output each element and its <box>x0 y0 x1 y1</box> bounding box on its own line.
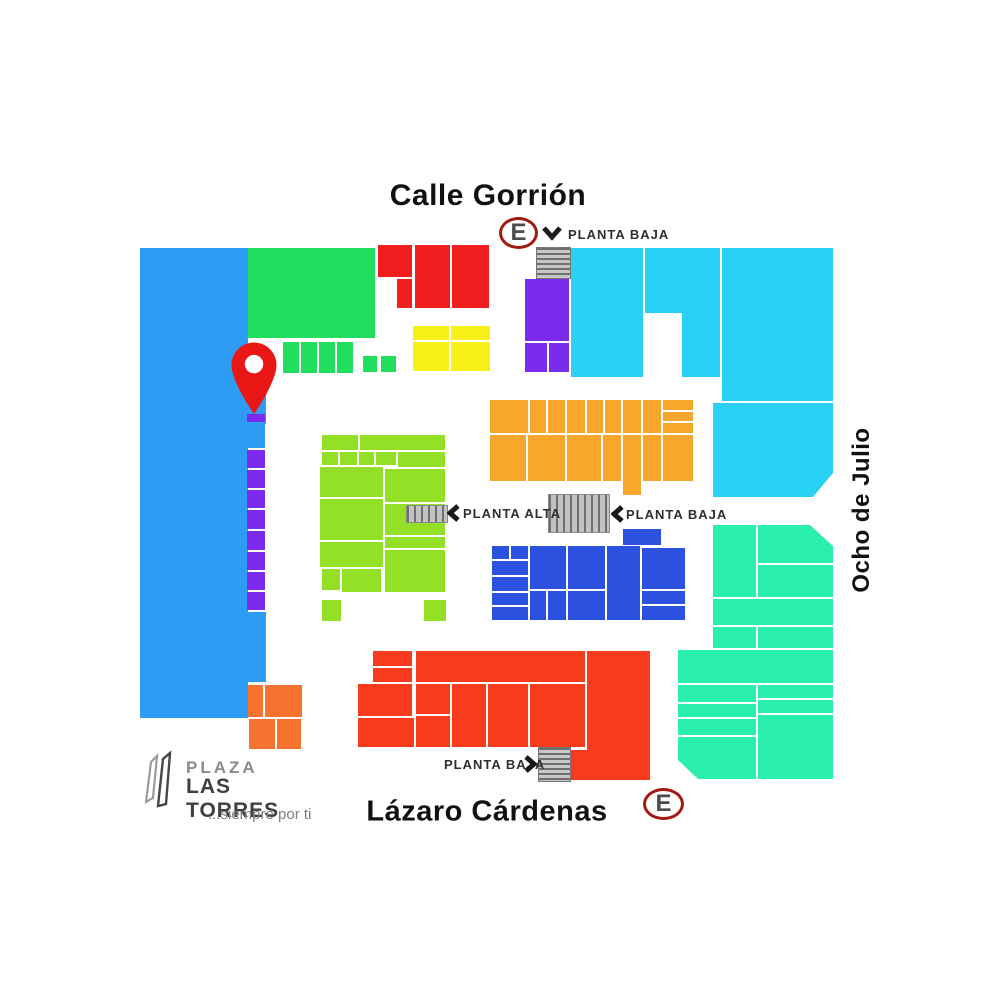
store-block[interactable] <box>643 400 661 433</box>
store-block[interactable] <box>492 607 528 620</box>
store-block[interactable] <box>528 435 565 481</box>
store-block[interactable] <box>451 342 490 371</box>
store-block[interactable] <box>340 452 357 465</box>
store-block[interactable] <box>360 435 445 450</box>
store-block[interactable] <box>758 685 833 698</box>
plaza-las-torres-logo: PLAZA LAS TORRES ...siempre por ti <box>140 748 330 828</box>
store-block[interactable] <box>607 546 640 620</box>
store-block[interactable] <box>249 719 275 749</box>
store-block[interactable] <box>530 400 546 433</box>
store-block[interactable] <box>283 342 299 373</box>
store-block[interactable] <box>587 400 603 433</box>
street-label-ocho-de-julio: Ocho de Julio <box>848 427 876 592</box>
store-block[interactable] <box>571 248 643 377</box>
floor-label-planta-baja-top: PLANTA BAJA <box>568 227 669 242</box>
store-block[interactable] <box>246 612 266 682</box>
store-block[interactable] <box>645 248 720 377</box>
store-block[interactable] <box>359 452 374 465</box>
store-block[interactable] <box>642 606 685 620</box>
store-block[interactable] <box>376 452 396 465</box>
store-block[interactable] <box>678 685 756 702</box>
store-block[interactable] <box>265 685 302 717</box>
store-block[interactable] <box>322 452 338 465</box>
store-block[interactable] <box>416 651 585 682</box>
store-block[interactable] <box>758 565 833 597</box>
store-block[interactable] <box>248 685 263 717</box>
entrance-letter: E <box>510 219 526 247</box>
store-block[interactable] <box>247 510 265 529</box>
store-block[interactable] <box>713 599 833 625</box>
store-block[interactable] <box>663 412 693 421</box>
store-block[interactable] <box>320 467 383 497</box>
store-block[interactable] <box>642 548 685 589</box>
logo-tagline: ...siempre por ti <box>208 806 311 823</box>
store-block[interactable] <box>247 490 265 508</box>
store-block[interactable] <box>247 424 265 448</box>
street-label-calle-gorrion: Calle Gorrión <box>390 179 587 213</box>
store-block[interactable] <box>363 356 377 372</box>
store-block[interactable] <box>623 400 641 433</box>
store-block[interactable] <box>398 452 445 467</box>
store-block[interactable] <box>603 435 621 481</box>
store-block[interactable] <box>623 435 641 495</box>
store-block[interactable] <box>416 684 450 714</box>
store-block[interactable] <box>385 537 445 548</box>
store-block[interactable] <box>642 591 685 604</box>
chevron-right-icon <box>523 754 537 774</box>
store-block[interactable] <box>140 248 248 718</box>
store-block[interactable] <box>722 248 833 401</box>
store-block[interactable] <box>530 684 585 747</box>
store-block[interactable] <box>490 435 526 481</box>
store-block[interactable] <box>385 550 445 592</box>
store-block[interactable] <box>320 499 383 540</box>
store-block[interactable] <box>623 529 661 545</box>
store-block[interactable] <box>247 592 265 610</box>
store-block[interactable] <box>678 704 756 717</box>
store-block[interactable] <box>397 279 412 308</box>
store-block[interactable] <box>663 400 693 410</box>
store-block[interactable] <box>247 531 265 550</box>
store-block[interactable] <box>713 403 833 497</box>
mall-map: Calle Gorrión Lázaro Cárdenas Ocho de Ju… <box>0 0 1000 1000</box>
stairs-icon <box>406 505 448 523</box>
street-label-lazaro-cardenas: Lázaro Cárdenas <box>366 796 607 829</box>
chevron-down-icon <box>541 225 563 241</box>
store-block[interactable] <box>451 326 490 340</box>
store-block[interactable] <box>247 552 265 570</box>
store-block[interactable] <box>415 245 450 308</box>
chevron-left-icon <box>611 504 625 524</box>
store-block[interactable] <box>548 400 565 433</box>
towers-icon <box>140 750 186 810</box>
store-block[interactable] <box>568 546 605 589</box>
store-block[interactable] <box>492 577 528 591</box>
store-block[interactable] <box>358 718 414 747</box>
store-block[interactable] <box>549 343 569 372</box>
store-block[interactable] <box>248 248 375 338</box>
store-block[interactable] <box>492 593 528 605</box>
store-block[interactable] <box>452 684 486 747</box>
store-block[interactable] <box>758 627 833 648</box>
store-block[interactable] <box>337 342 353 373</box>
store-block[interactable] <box>525 343 547 372</box>
store-block[interactable] <box>530 546 566 589</box>
location-pin-icon <box>227 337 281 420</box>
store-block[interactable] <box>758 715 833 779</box>
store-block[interactable] <box>413 342 449 371</box>
store-block[interactable] <box>322 600 341 621</box>
store-block[interactable] <box>492 561 528 575</box>
store-block[interactable] <box>247 450 265 468</box>
entrance-marker-bottom: E <box>643 788 684 820</box>
store-block[interactable] <box>358 684 412 716</box>
store-block[interactable] <box>567 435 601 481</box>
floor-label-planta-baja-mid: PLANTA BAJA <box>626 507 727 522</box>
entrance-marker-top: E <box>499 217 538 249</box>
store-block[interactable] <box>342 569 381 592</box>
store-block[interactable] <box>381 356 396 372</box>
store-block[interactable] <box>413 326 449 340</box>
store-block[interactable] <box>530 591 546 620</box>
store-block[interactable] <box>488 684 528 747</box>
floor-label-planta-alta: PLANTA ALTA <box>463 506 561 521</box>
store-block[interactable] <box>678 719 756 735</box>
chevron-left-icon <box>447 503 461 523</box>
store-block[interactable] <box>319 342 335 373</box>
store-block[interactable] <box>322 569 340 590</box>
store-block[interactable] <box>490 400 528 433</box>
store-block[interactable] <box>525 279 569 341</box>
store-block[interactable] <box>511 546 528 559</box>
store-block[interactable] <box>568 591 605 620</box>
store-block[interactable] <box>678 650 833 683</box>
store-block[interactable] <box>416 716 450 747</box>
store-block[interactable] <box>301 342 317 373</box>
store-block[interactable] <box>320 542 383 567</box>
store-block[interactable] <box>277 719 301 749</box>
store-block[interactable] <box>663 423 693 433</box>
store-block[interactable] <box>373 668 412 682</box>
store-block[interactable] <box>247 572 265 590</box>
store-block[interactable] <box>713 627 756 648</box>
store-block[interactable] <box>643 435 661 481</box>
store-block[interactable] <box>758 525 833 563</box>
store-block[interactable] <box>713 525 756 597</box>
store-block[interactable] <box>373 651 412 666</box>
stairs-icon <box>536 247 571 279</box>
store-block[interactable] <box>378 245 412 277</box>
store-block[interactable] <box>605 400 621 433</box>
store-block[interactable] <box>678 737 756 779</box>
store-block[interactable] <box>322 435 358 450</box>
store-block[interactable] <box>424 600 446 621</box>
store-block[interactable] <box>758 700 833 713</box>
store-block[interactable] <box>663 435 693 481</box>
entrance-letter: E <box>655 790 671 818</box>
store-block[interactable] <box>567 400 585 433</box>
store-block[interactable] <box>492 546 509 559</box>
store-block[interactable] <box>247 470 265 488</box>
store-block[interactable] <box>385 469 445 502</box>
store-block[interactable] <box>452 245 489 308</box>
store-block[interactable] <box>548 591 566 620</box>
